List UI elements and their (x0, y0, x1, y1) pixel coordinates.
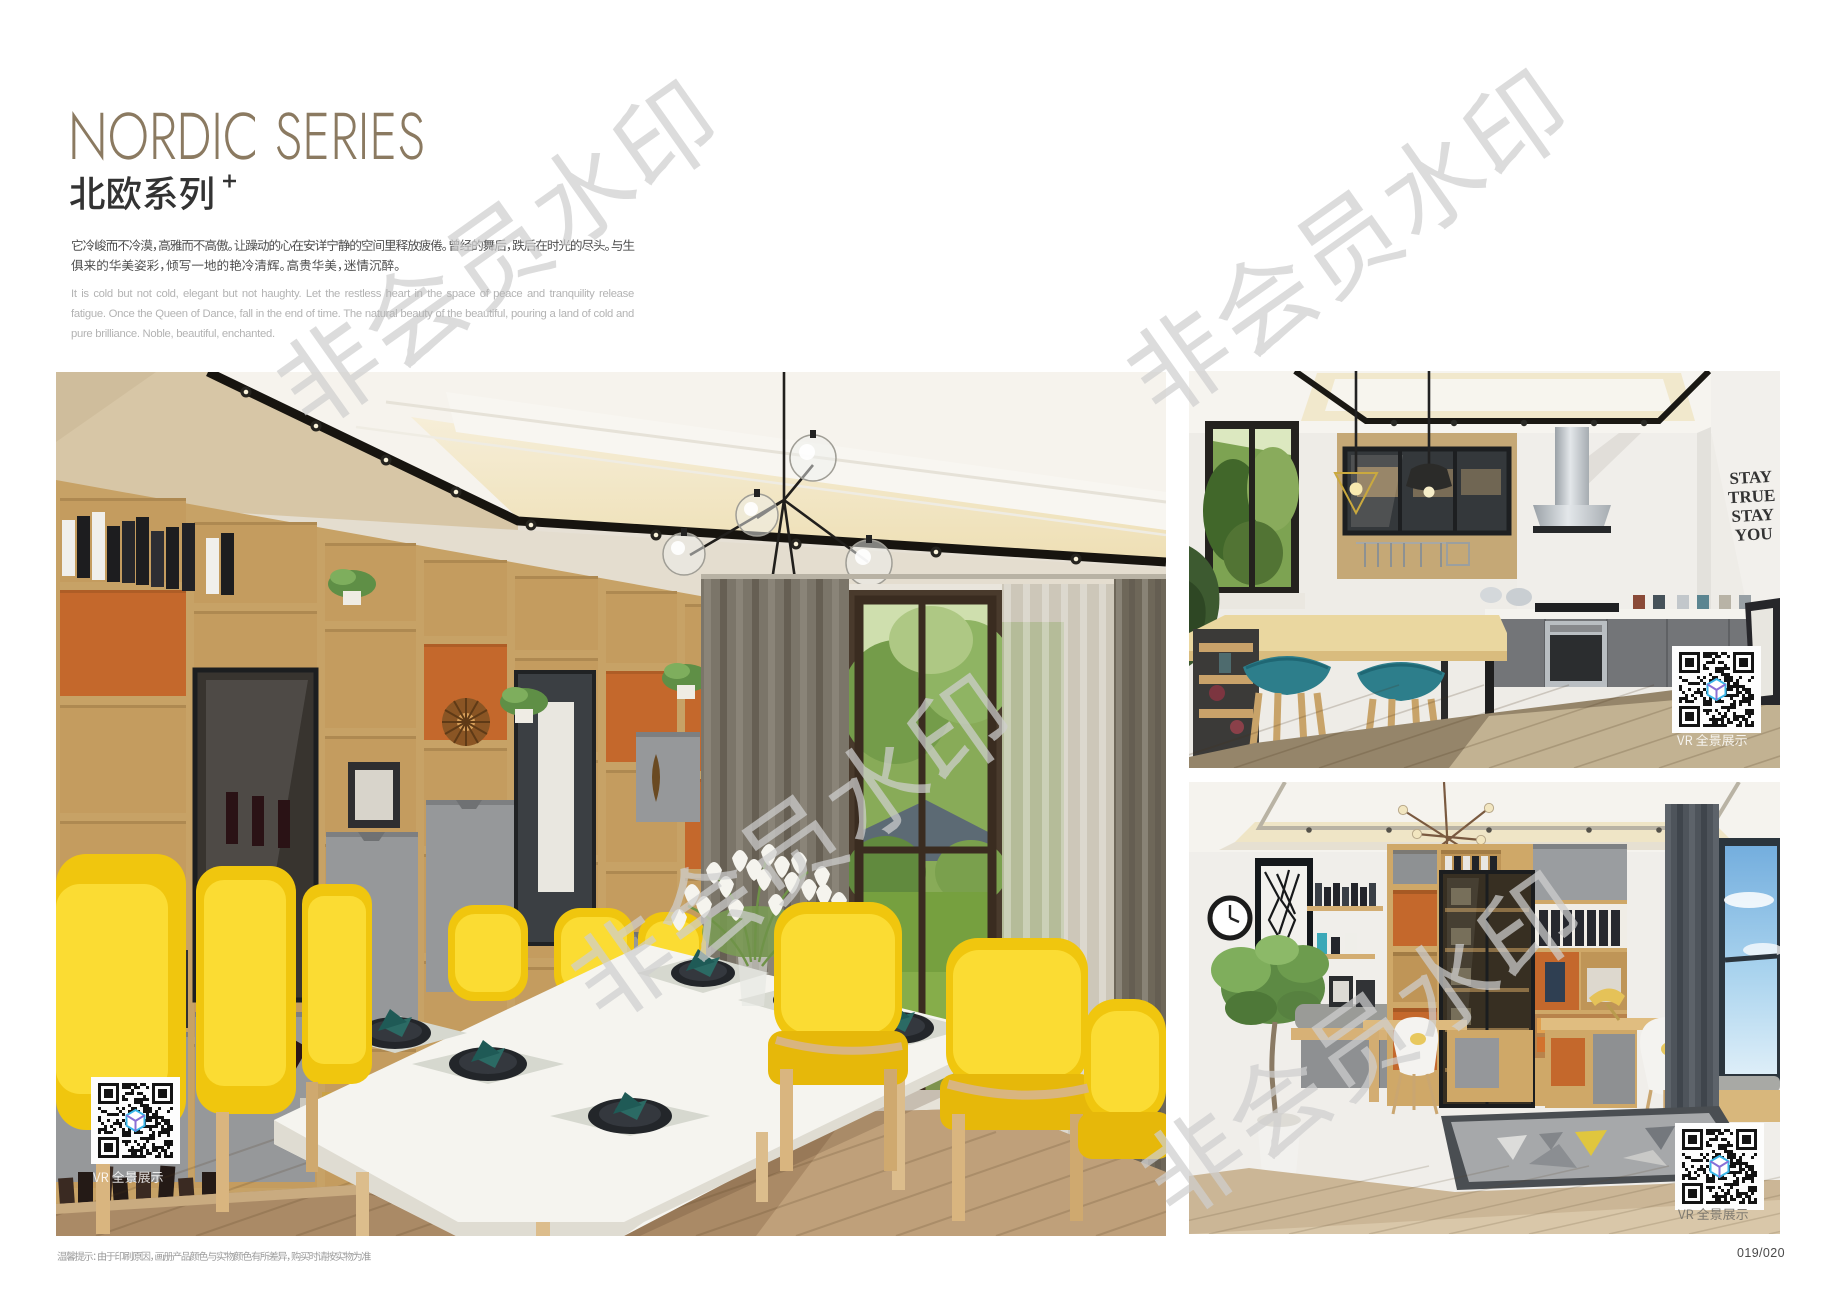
svg-text:STAY: STAY (1731, 505, 1774, 526)
svg-text:YOU: YOU (1734, 524, 1773, 545)
svg-text:STAY: STAY (1729, 467, 1772, 488)
svg-text:TRUE: TRUE (1728, 486, 1776, 507)
